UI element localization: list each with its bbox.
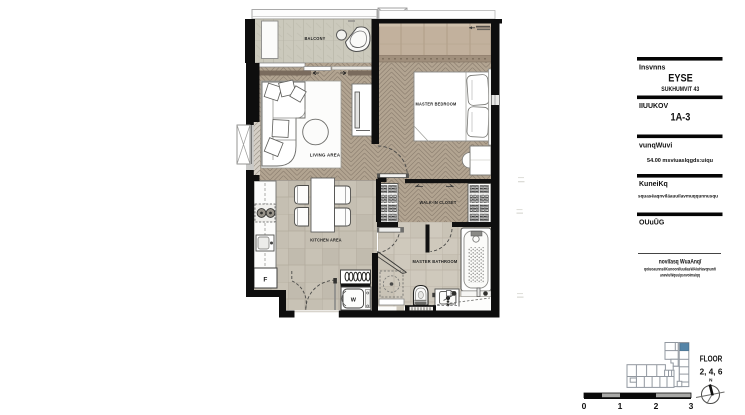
svg-text:OUuŪG: OUuŪG <box>639 219 665 227</box>
svg-text:LIVING AREA: LIVING AREA <box>310 153 341 158</box>
svg-text:aneviuWquuipsnvoimsiqq: aneviuWquuipsnvoimsiqq <box>660 273 700 278</box>
svg-text:IIUUKOV: IIUUKOV <box>639 103 669 110</box>
svg-text:3: 3 <box>689 401 694 411</box>
svg-text:W: W <box>351 298 357 304</box>
svg-text:2: 2 <box>654 401 659 411</box>
svg-text:Insvnns: Insvnns <box>639 65 666 72</box>
svg-text:F: F <box>263 277 267 284</box>
svg-text:qoiuoaunnsiiKunooniluuiiasWAiu: qoiuoaunnsiiKunooniluuiiasWAiuHavqnunň <box>644 267 716 272</box>
svg-text:KITCHEN AREA: KITCHEN AREA <box>310 238 342 243</box>
svg-text:BALCONY: BALCONY <box>305 36 326 41</box>
svg-text:squasēaqnviläauuilavmuqqunnusq: squasēaqnviläauuilavmuqqunnusqu <box>638 194 718 199</box>
svg-text:MASTER BATHROOM: MASTER BATHROOM <box>413 259 458 264</box>
svg-text:KuneiKq: KuneiKq <box>639 181 668 188</box>
svg-text:0: 0 <box>582 401 587 411</box>
svg-text:MASTER BEDROOM: MASTER BEDROOM <box>416 102 457 107</box>
svg-text:FLOOR: FLOOR <box>700 355 723 364</box>
svg-text:54.00 msviuaslqgds:uiqu: 54.00 msviuaslqgds:uiqu <box>647 158 714 164</box>
svg-text:WALK-IN CLOSET: WALK-IN CLOSET <box>420 200 457 205</box>
svg-text:EYSE: EYSE <box>668 72 693 84</box>
svg-text:noviĩasq WuaAnqĩ: noviĩasq WuaAnqĩ <box>659 259 703 266</box>
svg-text:1: 1 <box>618 401 623 411</box>
svg-text:SUKHUMVIT 43: SUKHUMVIT 43 <box>661 86 699 93</box>
svg-text:2, 4, 6: 2, 4, 6 <box>700 368 723 377</box>
svg-text:1A-3: 1A-3 <box>671 111 691 123</box>
svg-text:vunqWuvi: vunqWuvi <box>639 142 672 149</box>
